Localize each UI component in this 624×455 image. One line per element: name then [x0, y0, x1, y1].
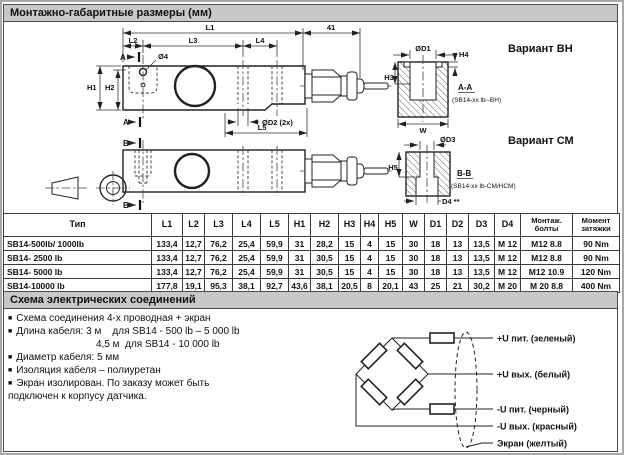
section-dimensions-title: Монтажно-габаритные размеры (мм) [10, 7, 212, 19]
table-row: SB14- 5000 lb133,412,776,225,459,93130,5… [4, 265, 620, 279]
value-cell: 13 [447, 237, 469, 251]
bullet-text: Экран изолирован. По заказу может быть [16, 377, 209, 390]
cut-mark-b-bottom: B [123, 201, 129, 210]
dim-l5: L5 [258, 123, 267, 132]
value-cell: M 12 [495, 237, 521, 251]
dim-h5: H5 [388, 163, 398, 172]
cut-note-aa: (SB14-xx lb--BH) [452, 97, 501, 104]
dim-h4: H4 [459, 50, 469, 59]
variant-bh-label: Вариант ВН [508, 43, 573, 55]
value-cell: 4 [361, 251, 379, 265]
col-header: L5 [261, 214, 289, 237]
col-header: L4 [233, 214, 261, 237]
dim-dia4: Ø4 [158, 52, 169, 61]
bullet-text: подключен к корпусу датчика. [8, 390, 147, 403]
value-cell: 13,5 [469, 251, 495, 265]
dim-d3: ØD3 [440, 135, 455, 144]
value-cell: 133,4 [152, 251, 183, 265]
col-header: D2 [447, 214, 469, 237]
col-header: W [403, 214, 425, 237]
bullet-text: Изоляция кабеля – полиуретан [16, 364, 161, 377]
col-header: D1 [425, 214, 447, 237]
dim-l4: L4 [256, 36, 266, 45]
cable-shield-ellipse [455, 332, 477, 448]
dim-41: 41 [327, 23, 335, 32]
col-header: Момент затяжки [573, 214, 620, 237]
cut-label-aa: A-A [458, 83, 472, 92]
bullet-marker-icon: ■ [8, 312, 12, 325]
value-cell: 15 [339, 265, 361, 279]
value-cell: 13 [447, 251, 469, 265]
value-cell: 30 [403, 265, 425, 279]
dim-d1: ØD1 [415, 44, 430, 53]
col-header: Тип [4, 214, 152, 237]
dim-l3: L3 [189, 36, 198, 45]
value-cell: 13,5 [469, 237, 495, 251]
cut-mark-b-top: B [123, 139, 129, 148]
table-body: SB14-500lb/ 1000lb133,412,776,225,459,93… [4, 237, 620, 293]
col-header: L2 [183, 214, 205, 237]
table-head: ТипL1L2L3L4L5H1H2H3H4H5WD1D2D3D4Монтаж. … [4, 214, 620, 237]
type-cell: SB14-500lb/ 1000lb [4, 237, 152, 251]
value-cell: 31 [289, 265, 311, 279]
value-cell: 15 [379, 237, 403, 251]
load-cell-bottom-view: B B [123, 138, 392, 210]
value-cell: 31 [289, 251, 311, 265]
value-cell: 18 [425, 265, 447, 279]
dimensions-table: ТипL1L2L3L4L5H1H2H3H4H5WD1D2D3D4Монтаж. … [3, 213, 620, 293]
value-cell: M12 8.8 [521, 251, 573, 265]
section-view-bb: ØD3 H5 D4 ** B-B (SB14-xx lb-CM/HCM) Вар… [388, 135, 574, 206]
value-cell: 59,9 [261, 237, 289, 251]
wire-label-excitation-plus: +U пит. (зеленый) [497, 334, 575, 344]
datasheet-page: Монтажно-габаритные размеры (мм) Ø4 [0, 0, 624, 455]
col-header: L1 [152, 214, 183, 237]
col-header: H3 [339, 214, 361, 237]
load-cell-top-view: Ø4 [123, 52, 392, 119]
bullet-item: ■Изоляция кабеля – полиуретан [8, 364, 326, 377]
col-header: H2 [311, 214, 339, 237]
dim-h1: H1 [87, 83, 97, 92]
bullet-text: Длина кабеля: 3 м для SB14 - 500 lb – 5 … [16, 325, 239, 338]
value-cell: 120 Nm [573, 265, 620, 279]
header-row: ТипL1L2L3L4L5H1H2H3H4H5WD1D2D3D4Монтаж. … [4, 214, 620, 237]
value-cell: 30,5 [311, 251, 339, 265]
bullet-text: Диаметр кабеля: 5 мм [16, 351, 119, 364]
value-cell: 30 [403, 237, 425, 251]
bullet-item: ■Диаметр кабеля: 5 мм [8, 351, 326, 364]
value-cell: 30,5 [311, 265, 339, 279]
wire-label-excitation-minus: -U пит. (черный) [497, 405, 569, 415]
value-cell: 12,7 [183, 265, 205, 279]
bullet-item: ■Экран изолирован. По заказу может быть [8, 377, 326, 390]
value-cell: 25,4 [233, 251, 261, 265]
value-cell: 15 [339, 237, 361, 251]
value-cell: 90 Nm [573, 237, 620, 251]
section-connections-header: Схема электрических соединений [4, 292, 617, 309]
col-header: D3 [469, 214, 495, 237]
value-cell: 76,2 [205, 237, 233, 251]
bullet-marker-icon: ■ [8, 364, 12, 377]
bridge-circuit [356, 332, 493, 448]
value-cell: 12,7 [183, 237, 205, 251]
value-cell: 13,5 [469, 265, 495, 279]
value-cell: 59,9 [261, 251, 289, 265]
col-header: Монтаж. болты [521, 214, 573, 237]
dim-d2: ØD2 (2x) [262, 118, 293, 127]
cable-gland-top [300, 70, 392, 102]
value-cell: 18 [425, 237, 447, 251]
value-cell: 15 [379, 265, 403, 279]
dim-l1: L1 [206, 23, 215, 32]
col-header: L3 [205, 214, 233, 237]
value-cell: M 12 [495, 265, 521, 279]
value-cell: 4 [361, 265, 379, 279]
cut-mark-a-bottom: A [123, 118, 129, 127]
bullet-text: Схема соединения 4-х проводная + экран [16, 312, 210, 325]
value-cell: 76,2 [205, 251, 233, 265]
value-cell: 31 [289, 237, 311, 251]
value-cell: 28,2 [311, 237, 339, 251]
value-cell: 133,4 [152, 265, 183, 279]
dim-d4: D4 ** [442, 197, 460, 206]
bullet-text: 4,5 м для SB14 - 10 000 lb [96, 338, 219, 351]
wire-label-signal-minus: -U вых. (красный) [497, 422, 577, 432]
cut-mark-a-top: A [120, 53, 126, 62]
col-header: H5 [379, 214, 403, 237]
type-cell: SB14- 2500 lb [4, 251, 152, 265]
value-cell: 59,9 [261, 265, 289, 279]
bullet-item: ■Схема соединения 4-х проводная + экран [8, 312, 326, 325]
cut-note-bb: (SB14-xx lb-CM/HCM) [451, 183, 516, 190]
wire-label-signal-plus: +U вых. (белый) [497, 370, 570, 380]
wiring-diagram: +U пит. (зеленый) +U вых. (белый) -U пит… [329, 309, 619, 450]
bullet-marker-icon: ■ [8, 325, 12, 338]
value-cell: 90 Nm [573, 251, 620, 265]
cable [364, 83, 388, 89]
section-dimensions-header: Монтажно-габаритные размеры (мм) [4, 5, 617, 22]
value-cell: 25,4 [233, 237, 261, 251]
value-cell: 4 [361, 237, 379, 251]
dim-w: W [419, 126, 427, 135]
value-cell: 25,4 [233, 265, 261, 279]
value-cell: 15 [339, 251, 361, 265]
value-cell: 76,2 [205, 265, 233, 279]
section-connections-title: Схема электрических соединений [10, 294, 196, 306]
dimensions-drawing: Ø4 [4, 22, 617, 214]
bullet-item: подключен к корпусу датчика. [8, 390, 326, 403]
table-row: SB14- 2500 lb133,412,776,225,459,93130,5… [4, 251, 620, 265]
type-cell: SB14- 5000 lb [4, 265, 152, 279]
value-cell: M 12 [495, 251, 521, 265]
wire-label-shield: Экран (желтый) [497, 439, 567, 449]
value-cell: 13 [447, 265, 469, 279]
section-view-aa: ØD1 H4 H3 W A-A (SB14-xx lb--BH) Вариант… [384, 43, 572, 135]
value-cell: M12 10.9 [521, 265, 573, 279]
value-cell: 12,7 [183, 251, 205, 265]
dim-h3: H3 [384, 73, 394, 82]
dim-h2: H2 [105, 83, 115, 92]
bullet-marker-icon: ■ [8, 377, 12, 390]
cut-label-bb: B-B [457, 169, 471, 178]
load-cell-end-view [45, 171, 130, 205]
bullet-item: ■Длина кабеля: 3 м для SB14 - 500 lb – 5… [8, 325, 326, 338]
table-row: SB14-500lb/ 1000lb133,412,776,225,459,93… [4, 237, 620, 251]
value-cell: M12 8.8 [521, 237, 573, 251]
col-header: H1 [289, 214, 311, 237]
bullet-marker-icon: ■ [8, 351, 12, 364]
dim-l2: L2 [129, 36, 138, 45]
col-header: D4 [495, 214, 521, 237]
cable-gland-bottom [300, 155, 392, 187]
value-cell: 133,4 [152, 237, 183, 251]
value-cell: 15 [379, 251, 403, 265]
bullet-list: ■Схема соединения 4-х проводная + экран■… [8, 312, 326, 403]
col-header: H4 [361, 214, 379, 237]
value-cell: 30 [403, 251, 425, 265]
bullet-item: 4,5 м для SB14 - 10 000 lb [96, 338, 326, 351]
value-cell: 18 [425, 251, 447, 265]
variant-cm-label: Вариант СМ [508, 135, 574, 147]
